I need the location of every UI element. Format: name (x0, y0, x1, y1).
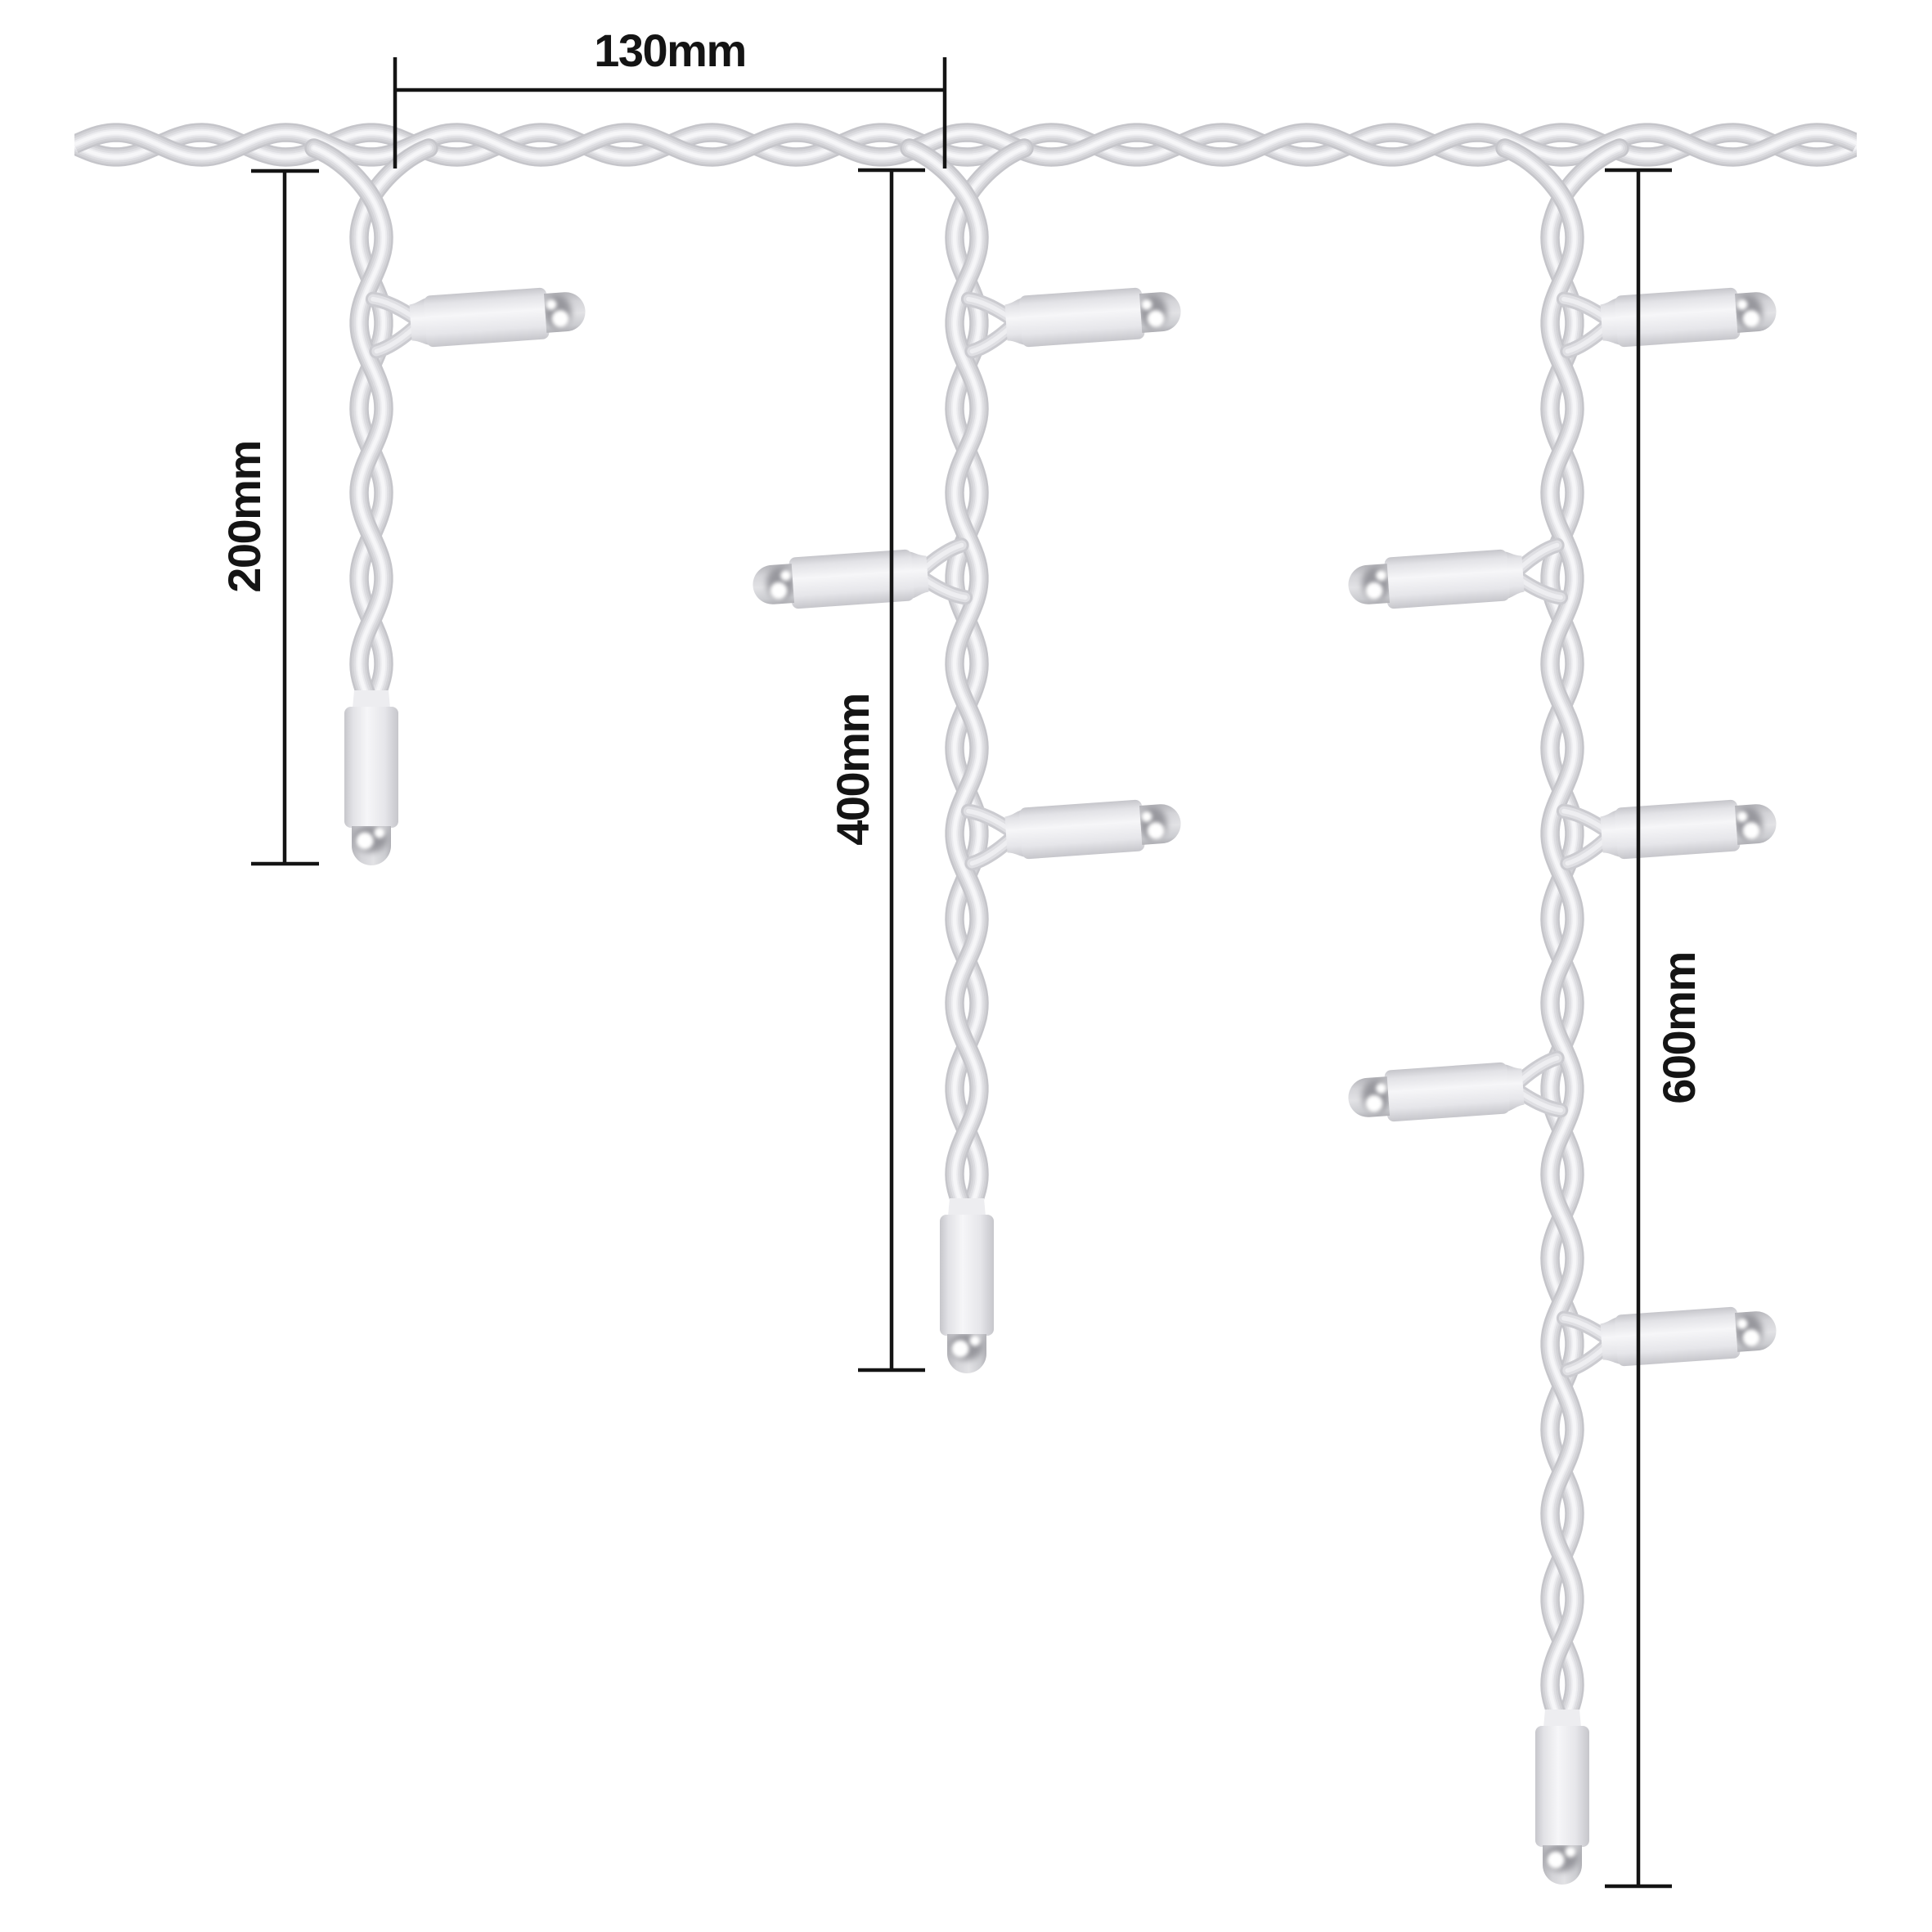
svg-text:130mm: 130mm (594, 25, 746, 76)
svg-text:200mm: 200mm (218, 441, 270, 593)
svg-text:600mm: 600mm (1653, 952, 1705, 1104)
svg-text:400mm: 400mm (827, 694, 878, 846)
